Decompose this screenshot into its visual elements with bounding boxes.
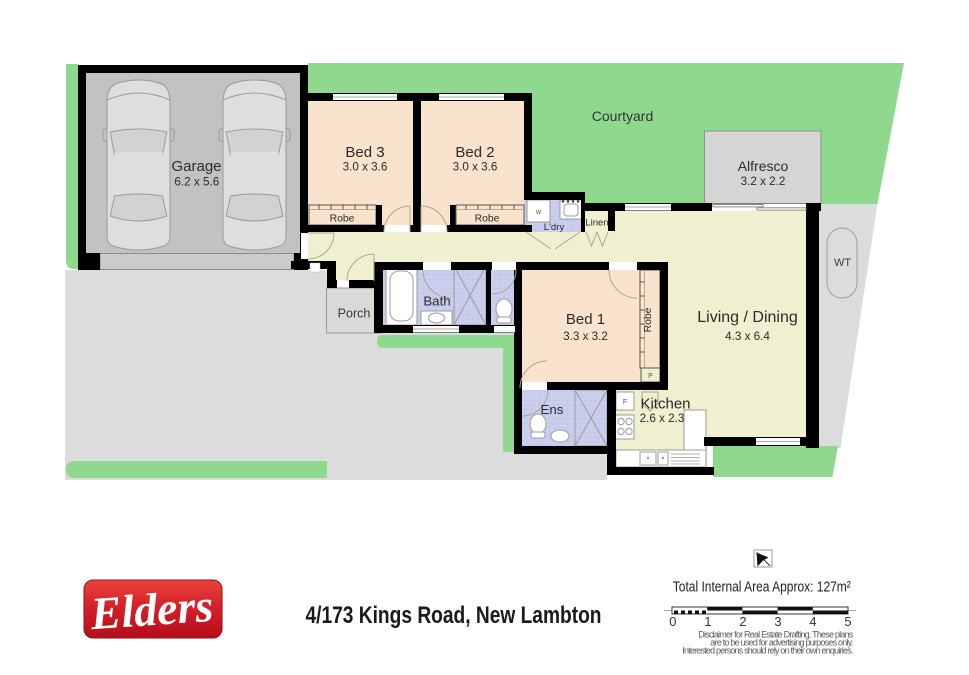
svg-text:Porch: Porch (338, 307, 371, 321)
svg-text:3.2 x 2.2: 3.2 x 2.2 (741, 175, 786, 188)
svg-text:Total Internal Area Approx: 12: Total Internal Area Approx: 127m² (673, 579, 851, 596)
svg-text:1: 1 (704, 614, 711, 629)
svg-text:2: 2 (739, 614, 746, 629)
svg-text:Elders: Elders (88, 580, 215, 640)
svg-text:6.2 x 5.6: 6.2 x 5.6 (174, 175, 219, 188)
svg-text:2.6 x 2.3: 2.6 x 2.3 (640, 412, 685, 425)
svg-text:Linen: Linen (585, 218, 608, 229)
svg-text:3: 3 (774, 614, 781, 629)
svg-text:Robe: Robe (643, 307, 654, 332)
svg-text:Alfresco: Alfresco (738, 158, 789, 174)
svg-text:3.0 x 3.6: 3.0 x 3.6 (343, 161, 388, 174)
svg-text:Robe: Robe (330, 214, 355, 225)
svg-text:Bed 3: Bed 3 (345, 144, 384, 161)
svg-text:4.3 x 6.4: 4.3 x 6.4 (725, 330, 770, 343)
svg-text:w: w (535, 209, 542, 216)
svg-text:3.3 x 3.2: 3.3 x 3.2 (563, 330, 608, 343)
svg-text:0: 0 (669, 614, 676, 629)
svg-text:WT: WT (834, 257, 851, 269)
svg-text:Bed 2: Bed 2 (455, 144, 494, 161)
svg-text:4/173 Kings Road, New Lambton: 4/173 Kings Road, New Lambton (306, 602, 602, 629)
svg-text:L'dry: L'dry (544, 222, 565, 233)
svg-text:P: P (648, 373, 653, 380)
svg-text:Ens: Ens (541, 402, 564, 417)
svg-text:Kitchen: Kitchen (640, 396, 690, 413)
svg-text:5: 5 (844, 614, 851, 629)
svg-text:F: F (623, 399, 627, 406)
svg-text:Bath: Bath (423, 294, 450, 309)
svg-text:Bed 1: Bed 1 (566, 311, 605, 328)
svg-text:3.0 x 3.6: 3.0 x 3.6 (453, 161, 498, 174)
svg-text:Living / Dining: Living / Dining (697, 309, 798, 326)
svg-text:Garage: Garage (171, 158, 221, 175)
svg-text:Courtyard: Courtyard (592, 108, 653, 124)
svg-text:4: 4 (809, 614, 816, 629)
svg-text:Robe: Robe (475, 214, 500, 225)
svg-text:Interested persons should rely: Interested persons should rely on their … (682, 646, 853, 656)
